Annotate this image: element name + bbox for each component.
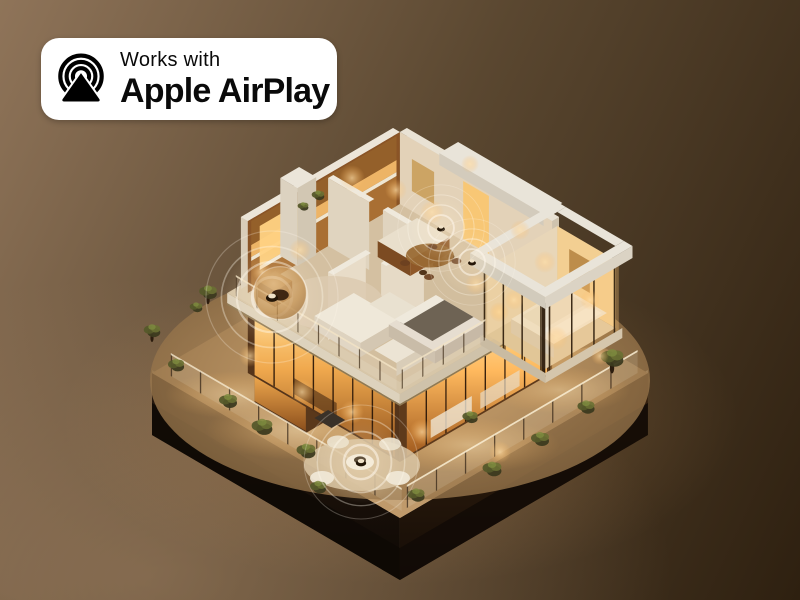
airplay-house-hero: Works with Apple AirPlay bbox=[0, 0, 800, 600]
works-with-apple-airplay-badge: Works with Apple AirPlay bbox=[41, 38, 337, 120]
badge-works-with: Works with bbox=[120, 50, 329, 70]
airplay-icon bbox=[54, 52, 108, 106]
badge-product-name: Apple AirPlay bbox=[120, 74, 329, 108]
badge-text: Works with Apple AirPlay bbox=[120, 50, 329, 108]
